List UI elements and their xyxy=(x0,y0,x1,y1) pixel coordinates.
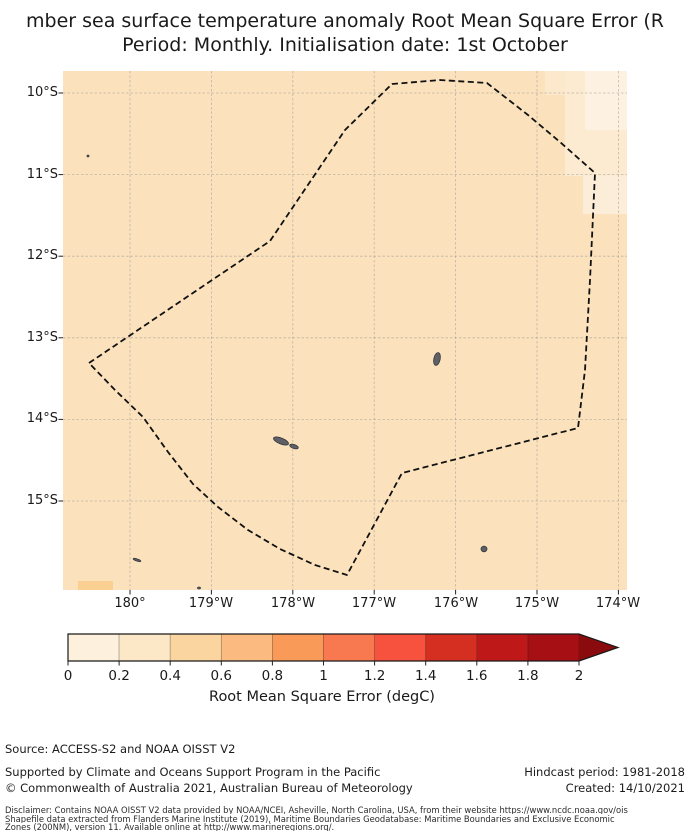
colorbar-bin-3 xyxy=(221,634,272,661)
y-tick-10s: 10°S xyxy=(0,85,58,101)
island-islet-se xyxy=(481,546,487,552)
disclaimer-line2: Shapefile data extracted from Flanders M… xyxy=(5,815,690,823)
map-cell-light-block-ne-low xyxy=(583,176,627,214)
cb-tick-0: 0 xyxy=(64,668,73,684)
cb-tick-16: 1.6 xyxy=(466,668,487,684)
y-tick-13s: 13°S xyxy=(0,330,58,346)
colorbar-bin-5 xyxy=(324,634,375,661)
hindcast-period: Hindcast period: 1981-2018 xyxy=(524,765,685,779)
colorbar-bin-2 xyxy=(170,634,221,661)
cb-tick-18: 1.8 xyxy=(517,668,538,684)
x-tick-178w: 178°W xyxy=(271,596,315,611)
source-line: Source: ACCESS-S2 and NOAA OISST V2 xyxy=(5,742,235,756)
cb-tick-12: 1.2 xyxy=(364,668,385,684)
y-tick-12s: 12°S xyxy=(0,248,58,264)
disclaimer-line3: Zones (200NM), version 11. Available onl… xyxy=(5,823,690,831)
map-base-fill xyxy=(63,71,627,590)
island-islet-nw xyxy=(87,155,89,157)
y-tick-11s: 11°S xyxy=(0,167,58,183)
cb-tick-1: 1 xyxy=(319,668,328,684)
cb-tick-2: 2 xyxy=(575,668,584,684)
x-tick-174w: 174°W xyxy=(596,596,640,611)
chart-title: mber sea surface temperature anomaly Roo… xyxy=(0,9,690,57)
colorbar-over-arrow xyxy=(579,634,618,661)
cb-tick-06: 0.6 xyxy=(211,668,232,684)
supported-line: Supported by Climate and Oceans Support … xyxy=(5,765,380,779)
sst-rmse-map xyxy=(55,71,635,598)
cb-tick-04: 0.4 xyxy=(159,668,180,684)
map-cell-light-cell-ne-a xyxy=(545,71,565,95)
x-tick-175w: 175°W xyxy=(515,596,559,611)
colorbar-title: Root Mean Square Error (degC) xyxy=(209,689,435,705)
island-islet-s xyxy=(198,587,201,589)
disclaimer-line1: Disclaimer: Contains NOAA OISST V2 data … xyxy=(5,806,690,814)
x-tick-177w: 177°W xyxy=(352,596,396,611)
colorbar-bin-9 xyxy=(528,634,579,661)
chart-title-line2: Period: Monthly. Initialisation date: 1s… xyxy=(0,33,690,57)
colorbar-bin-8 xyxy=(477,634,528,661)
cb-tick-02: 0.2 xyxy=(108,668,129,684)
x-tick-179w: 179°W xyxy=(189,596,233,611)
map-cell-very-light-corner xyxy=(585,71,627,130)
chart-title-line1: mber sea surface temperature anomaly Roo… xyxy=(0,9,690,33)
colorbar-bin-4 xyxy=(272,634,323,661)
colorbar-bin-7 xyxy=(426,634,477,661)
cb-tick-08: 0.8 xyxy=(262,668,283,684)
y-tick-15s: 15°S xyxy=(0,493,58,509)
y-tick-14s: 14°S xyxy=(0,411,58,427)
cb-tick-14: 1.4 xyxy=(415,668,436,684)
colorbar-bin-6 xyxy=(375,634,426,661)
map-cell-warm-cell-sw xyxy=(78,581,113,590)
colorbar-bin-1 xyxy=(119,634,170,661)
x-tick-176w: 176°W xyxy=(434,596,478,611)
created-date: Created: 14/10/2021 xyxy=(566,781,685,795)
copyright-line: © Commonwealth of Australia 2021, Austra… xyxy=(5,781,413,795)
figure: mber sea surface temperature anomaly Roo… xyxy=(0,0,690,839)
x-tick-180: 180° xyxy=(114,596,145,611)
colorbar-bin-0 xyxy=(68,634,119,661)
colorbar xyxy=(60,628,635,670)
